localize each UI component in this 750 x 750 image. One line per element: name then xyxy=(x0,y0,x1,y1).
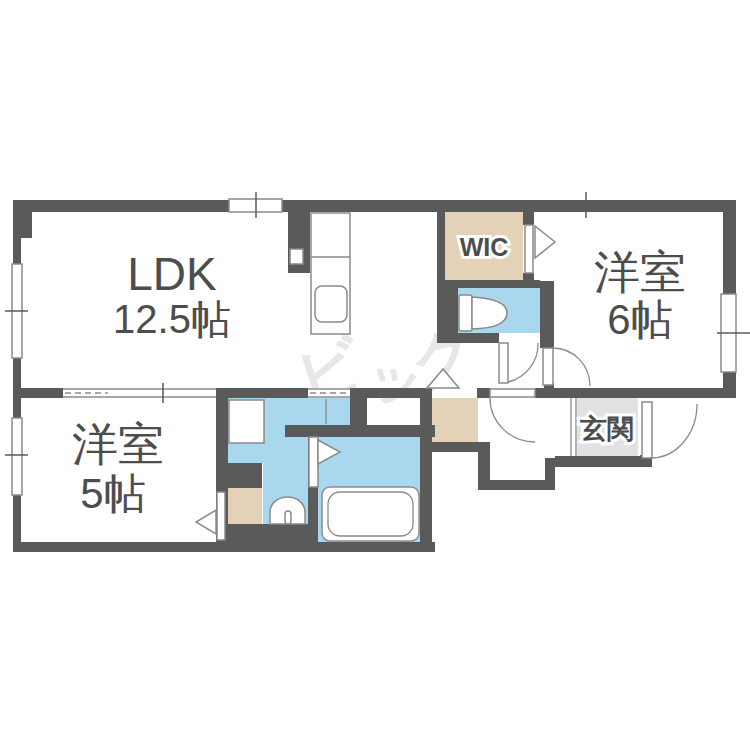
room-label-bedroom5: 洋室 xyxy=(72,418,164,470)
bedroom6-door-leaf xyxy=(543,348,553,385)
washroom-stub-wall xyxy=(350,398,367,425)
wall-above-closet5 xyxy=(226,463,262,488)
outer-wall-top xyxy=(13,200,736,212)
window-left-lower xyxy=(12,418,22,495)
room-label-wic: WIC xyxy=(460,233,509,261)
mid-wall xyxy=(21,388,63,398)
sliding-door xyxy=(63,383,216,403)
room-label-bedroom6: 洋室 xyxy=(594,246,686,298)
wall-below-hall-closet xyxy=(420,442,490,452)
closet5-door-jamb xyxy=(217,492,225,540)
bedroom6-door-arc xyxy=(553,348,590,386)
wic-left-wall xyxy=(437,212,445,288)
hall-door-opening xyxy=(490,389,535,397)
room-label-ldk-size: 12.5帖 xyxy=(113,297,231,341)
genkan-bottom-wall xyxy=(555,456,652,467)
toilet-tank xyxy=(459,295,472,331)
entry-door-arc xyxy=(652,404,697,458)
room-label-bedroom6-size: 6帖 xyxy=(607,296,672,343)
kitchen-sink xyxy=(315,286,347,322)
wic-door-stub-bottom xyxy=(523,273,534,288)
room-label-ldk: LDK xyxy=(127,248,217,300)
bathtub xyxy=(322,487,419,541)
hall-door xyxy=(490,389,535,442)
bathroom-top-wall xyxy=(285,425,435,437)
toilet-right-wall xyxy=(540,281,554,348)
mid-wall xyxy=(535,388,736,398)
hall-wall-vert2 xyxy=(545,458,555,490)
washbasin-faucet xyxy=(285,511,291,524)
closet5-door-triangle xyxy=(196,510,216,534)
room-label-genkan: 玄関 xyxy=(579,414,634,444)
toilet-bottom-wall xyxy=(437,333,499,343)
mid-wall xyxy=(350,388,432,398)
washroom-bottom-wall xyxy=(228,524,318,542)
washing-machine xyxy=(229,400,264,443)
entry-door-leaf xyxy=(642,402,652,458)
hall-closet-floor xyxy=(430,398,478,442)
kitchen-wall-box xyxy=(290,249,303,264)
floor-plan: ビ ッ グ xyxy=(0,0,750,750)
toilet-door-leaf xyxy=(499,343,508,383)
wic-door-stub-top xyxy=(523,212,534,225)
hall-door-arc xyxy=(490,398,535,442)
mid-wall xyxy=(477,388,490,398)
bathroom-door-jamb xyxy=(309,437,318,487)
wic-door-jamb xyxy=(525,225,533,273)
toilet-door-arc xyxy=(508,343,538,382)
wic-door-triangle xyxy=(535,226,555,258)
wall-right-column xyxy=(420,398,432,542)
outer-wall-left xyxy=(13,200,21,552)
floor-plan-svg: ビ ッ グ xyxy=(0,0,750,750)
pillar-top-left xyxy=(13,212,32,238)
hall-wall-horiz xyxy=(478,480,555,490)
room-label-bedroom5-size: 5帖 xyxy=(80,470,145,517)
mid-wall xyxy=(216,388,308,398)
